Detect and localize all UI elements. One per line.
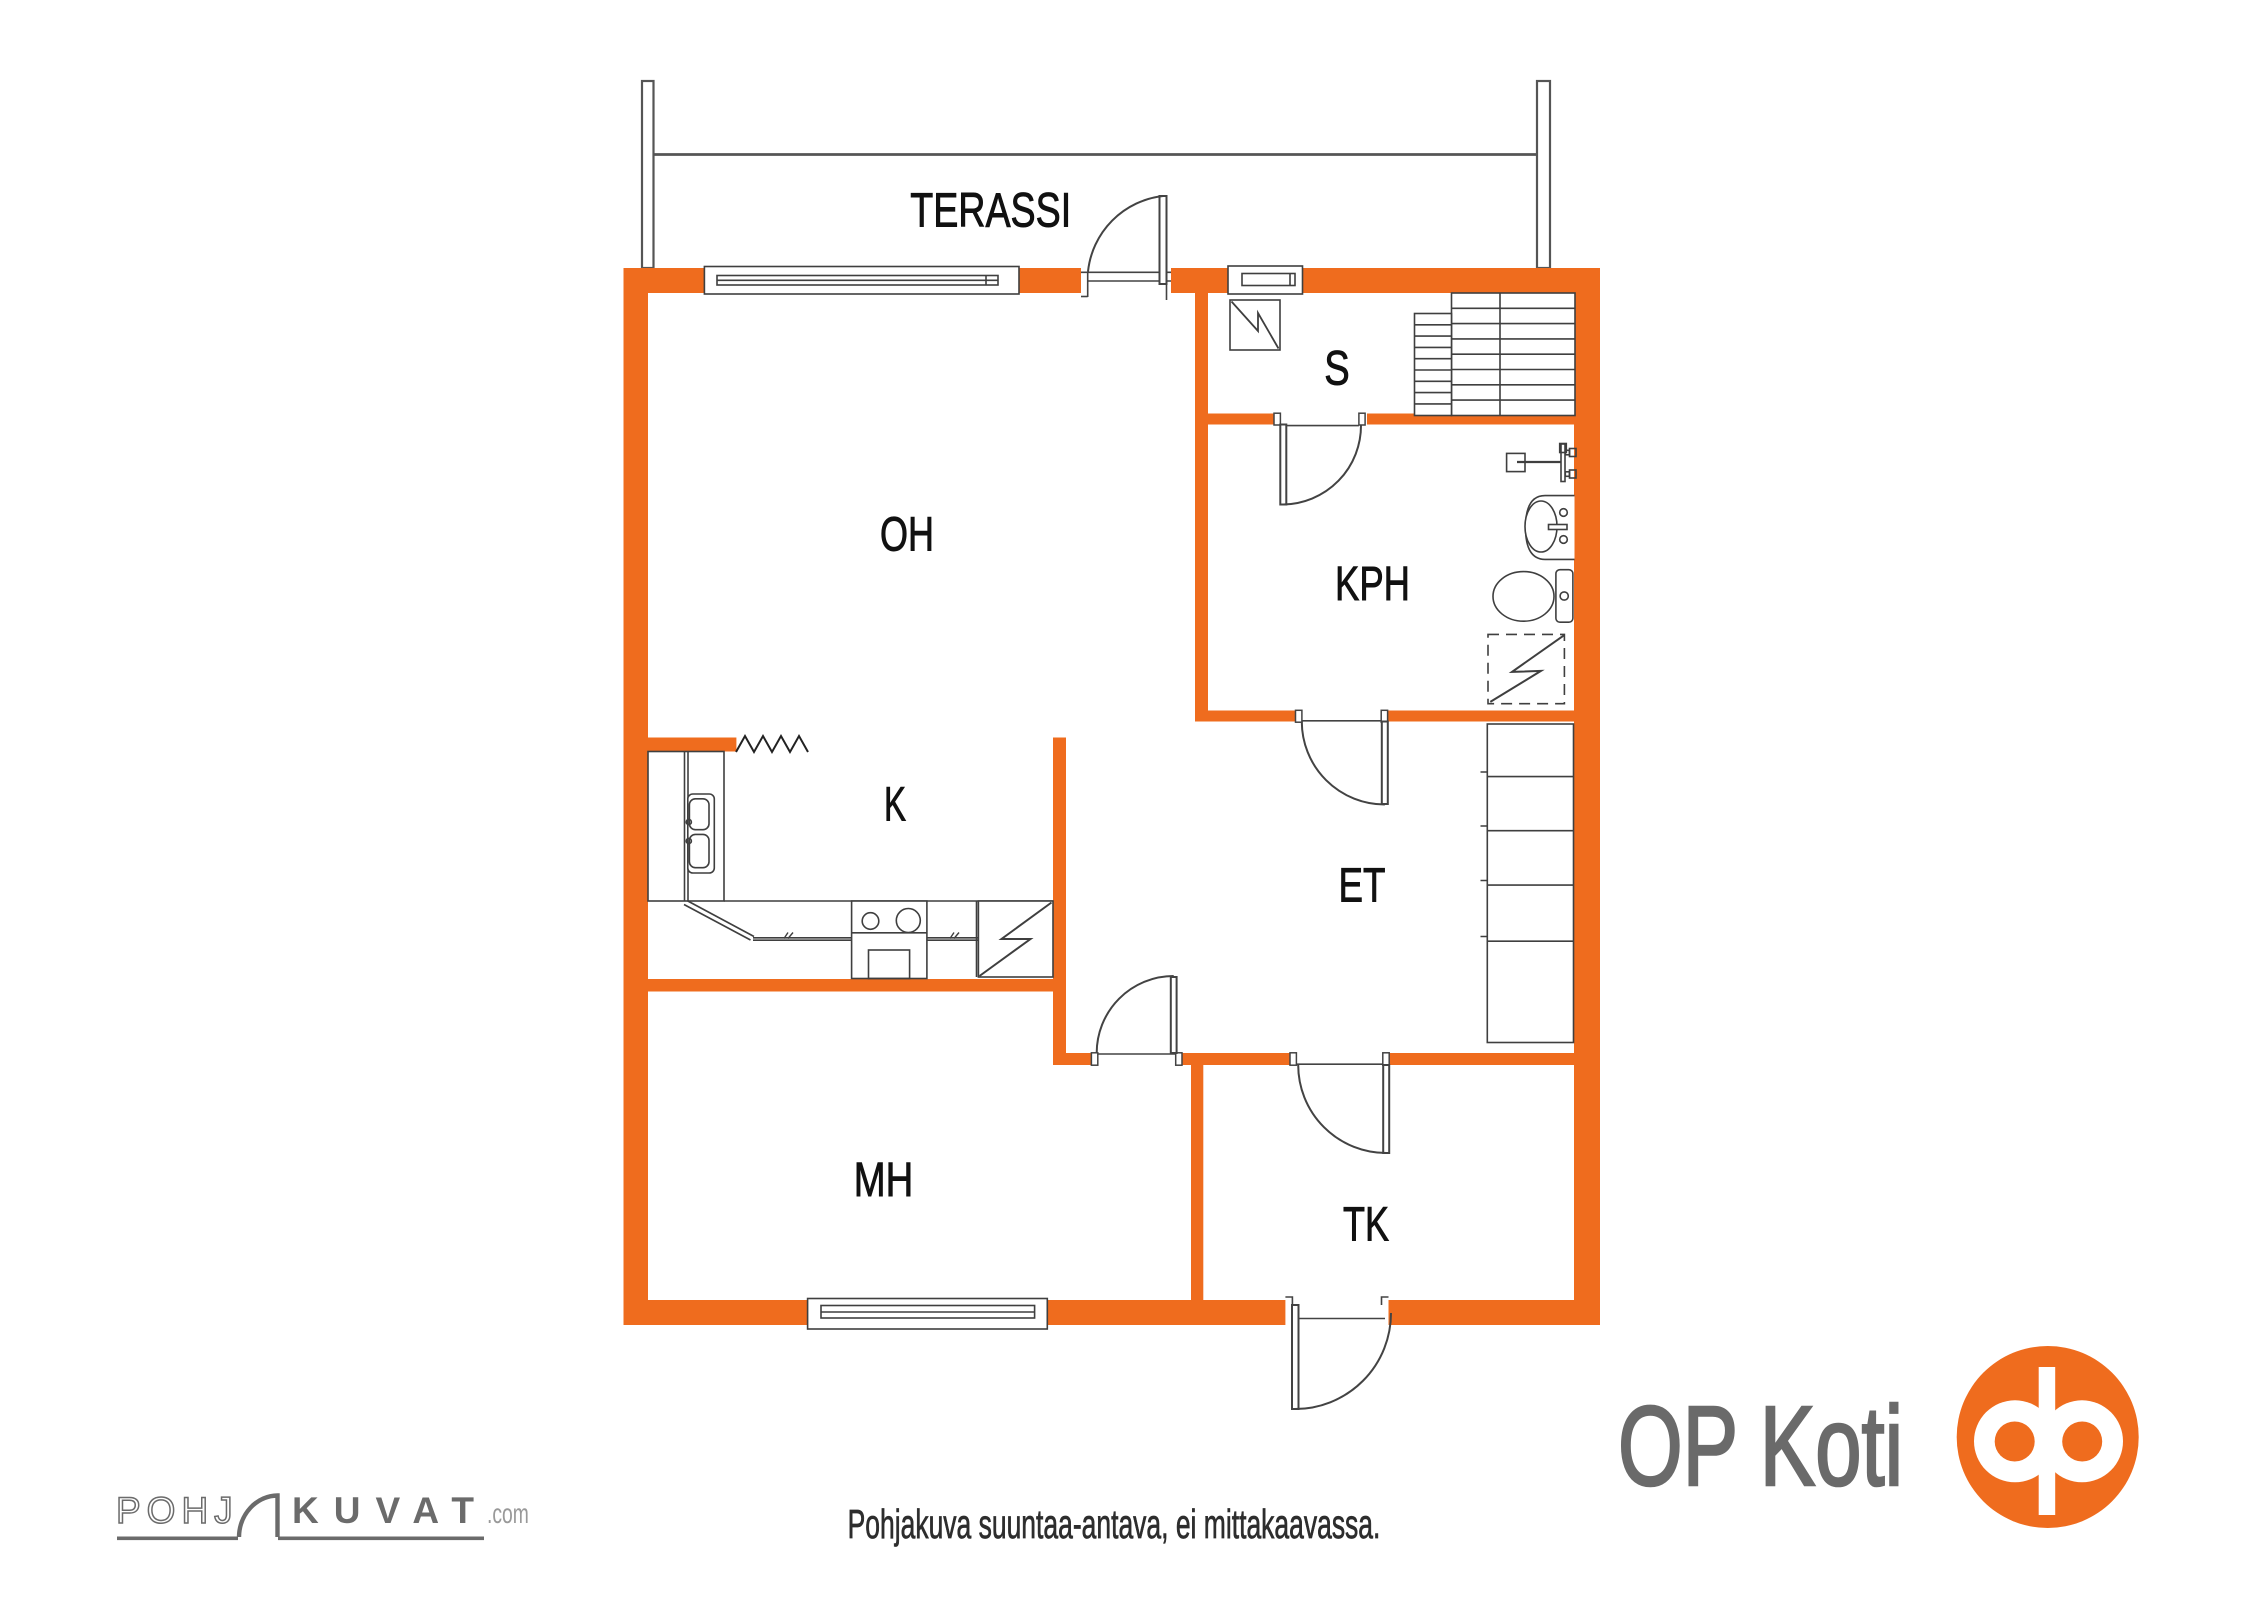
svg-text:OH: OH xyxy=(880,507,934,562)
svg-text:OP Koti: OP Koti xyxy=(1618,1384,1903,1510)
svg-text:S: S xyxy=(1324,341,1349,395)
svg-text:Pohjakuva suuntaa-antava, ei m: Pohjakuva suuntaa-antava, ei mittakaavas… xyxy=(848,1502,1381,1547)
svg-text:.com: .com xyxy=(487,1499,529,1530)
svg-text:ET: ET xyxy=(1339,859,1386,913)
svg-text:KPH: KPH xyxy=(1335,557,1410,611)
svg-text:TK: TK xyxy=(1343,1197,1389,1252)
svg-text:K: K xyxy=(884,776,906,831)
svg-text:MH: MH xyxy=(854,1153,913,1207)
svg-text:TERASSI: TERASSI xyxy=(910,184,1071,238)
svg-text:POHJ: POHJ xyxy=(116,1490,239,1531)
svg-text:KUVAT: KUVAT xyxy=(292,1490,489,1531)
